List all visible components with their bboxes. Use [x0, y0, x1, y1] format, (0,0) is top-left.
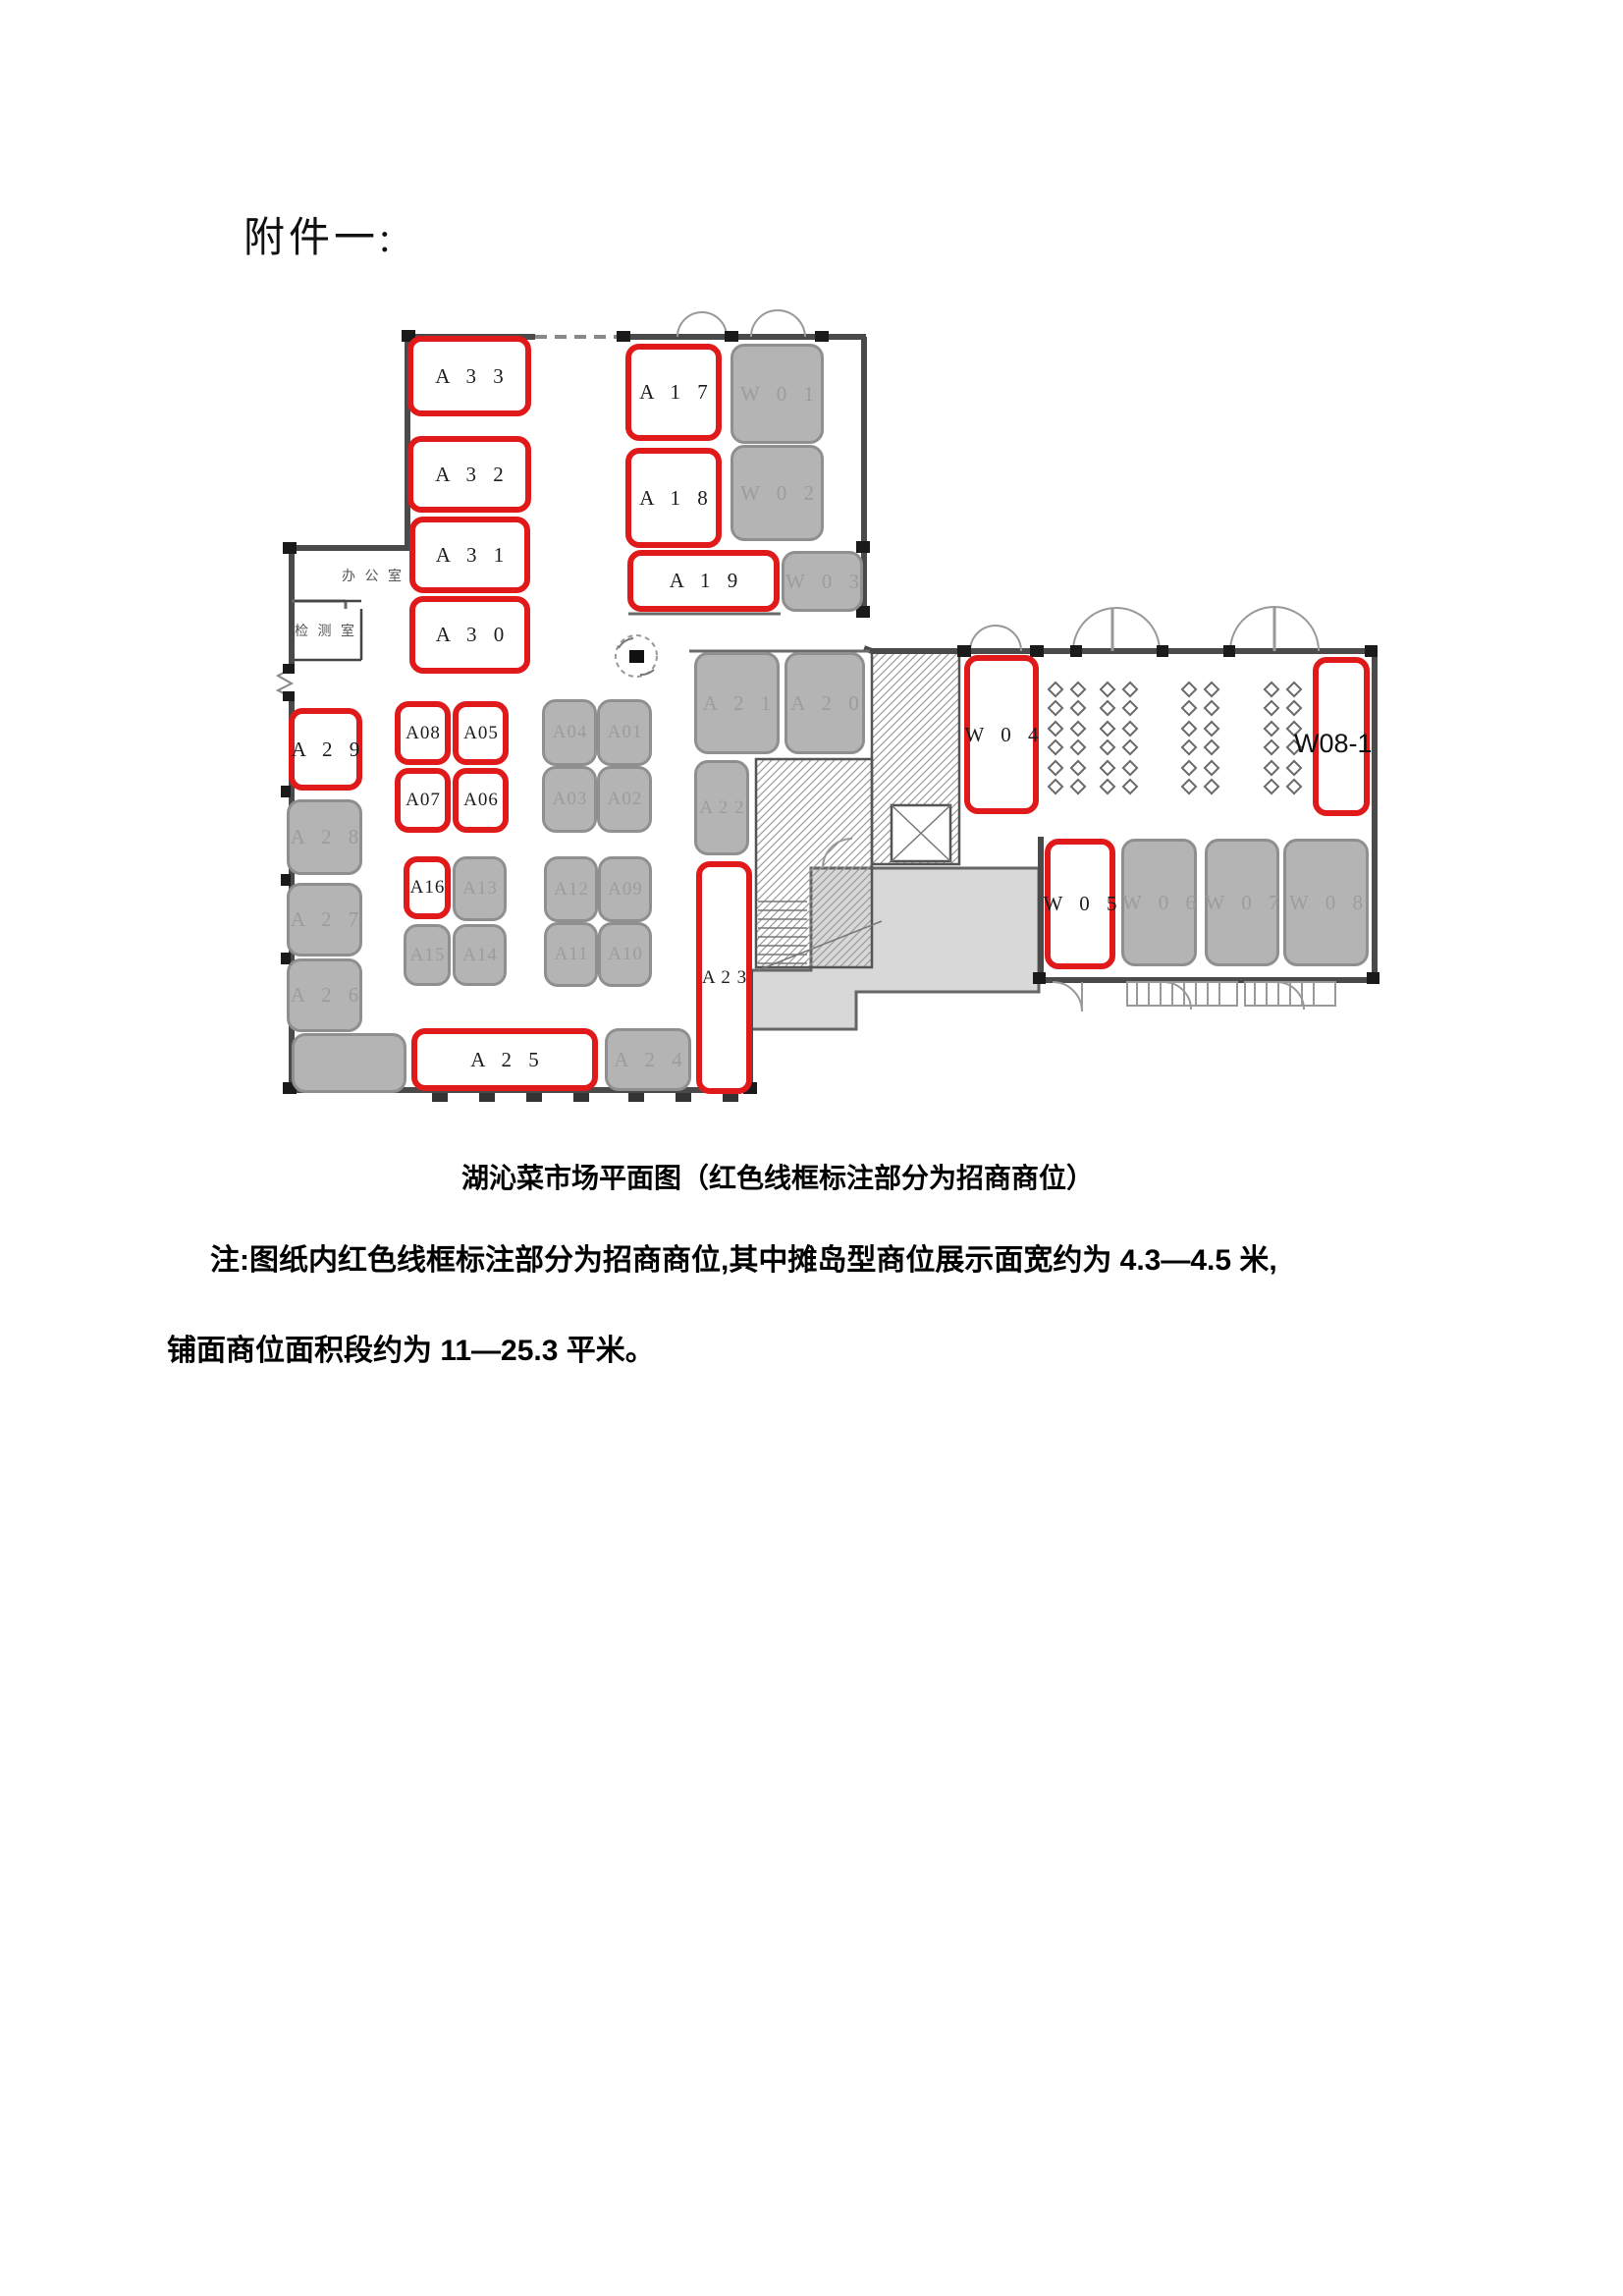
stall-A27: A 2 7: [287, 883, 362, 957]
stall-label: A16: [409, 877, 446, 899]
stall-label: A 2 0: [784, 691, 865, 716]
stall-label: W 0 6: [1116, 891, 1202, 915]
stall-A30: A 3 0: [409, 596, 530, 674]
stall-W08: W 0 8: [1283, 839, 1369, 966]
stall-label: A 1 7: [633, 380, 714, 405]
stall-A28: A 2 8: [287, 799, 362, 875]
stall-A19: A 1 9: [627, 550, 780, 612]
stall-W06: W 0 6: [1121, 839, 1197, 966]
stall-label: W 0 7: [1200, 891, 1285, 915]
dining-table-icon: [1048, 722, 1091, 757]
stall-A25: A 2 5: [411, 1028, 598, 1091]
dining-table-icon: [1264, 761, 1307, 796]
stall-label: A07: [405, 790, 441, 811]
room-label-testing-room: 检 测 室: [295, 621, 357, 640]
stall-A07: A07: [395, 768, 451, 833]
stall-label: A06: [462, 790, 499, 811]
stall-label: A 3 2: [429, 463, 510, 487]
dining-table-icon: [1181, 761, 1224, 796]
stall-label: A 2 7: [285, 907, 365, 932]
room-label-office: 办 公 室: [342, 566, 405, 585]
stall-label: A02: [607, 789, 643, 810]
stall-A12: A12: [544, 856, 598, 922]
stall-label: A 3 3: [429, 364, 510, 389]
stall-A03: A03: [542, 766, 597, 833]
stall-label: A10: [607, 944, 643, 965]
stall-label: A 2 8: [285, 825, 365, 849]
dining-table-icon: [1264, 683, 1307, 718]
stall-label: A 3 0: [430, 623, 511, 647]
stall-A33: A 3 3: [407, 336, 531, 416]
stall-label: W 0 4: [959, 723, 1045, 747]
stall-A18: A 1 8: [625, 448, 722, 548]
stall-A17: A 1 7: [625, 344, 722, 441]
stall-A23: A 2 3: [696, 861, 752, 1094]
stall-A14: A14: [453, 924, 507, 986]
dining-table-icon: [1048, 761, 1091, 796]
stall-label: W 0 2: [734, 481, 820, 506]
stall-A24: A 2 4: [605, 1028, 691, 1091]
stall-label: A08: [405, 723, 441, 744]
stall-label: W 0 8: [1283, 891, 1369, 915]
floor-plan: A 3 3A 3 2A 3 1A 3 0A 1 7A 1 8A 1 9W 0 1…: [0, 0, 1623, 1139]
stall-label: A14: [461, 945, 498, 966]
note-line-1: 注:图纸内红色线框标注部分为招商商位,其中摊岛型商位展示面宽约为 4.3—4.5…: [210, 1235, 1277, 1279]
stall-label: A 2 2: [698, 797, 744, 819]
stall-A15: A15: [404, 924, 451, 986]
stall-W05: W 0 5: [1045, 839, 1115, 969]
stall-A16: A16: [404, 856, 451, 919]
stall-A02: A02: [597, 766, 652, 833]
stall-A05: A05: [453, 701, 509, 765]
dining-table-icon: [1181, 683, 1224, 718]
dining-table-icon: [1100, 683, 1143, 718]
stall-W07: W 0 7: [1205, 839, 1279, 966]
note-line-2: 铺面商位面积段约为 11—25.3 平米。: [167, 1326, 655, 1369]
figure-caption: 湖沁菜市场平面图（红色线框标注部分为招商商位）: [461, 1157, 1094, 1196]
stall-label: A09: [607, 879, 643, 901]
stall-label: A 1 8: [633, 486, 714, 511]
stall-layer: A 3 3A 3 2A 3 1A 3 0A 1 7A 1 8A 1 9W 0 1…: [0, 0, 1623, 1139]
stall-label: A 1 9: [664, 569, 744, 593]
stall-label: A 2 1: [697, 691, 778, 716]
stall-A09: A09: [598, 856, 652, 922]
stall-label: W 0 3: [780, 570, 865, 594]
stall-W04: W 0 4: [964, 655, 1039, 814]
stall-W02: W 0 2: [730, 445, 824, 541]
stall-label: W 0 1: [734, 382, 820, 407]
stall-label: A11: [553, 944, 588, 965]
stall-label: A 3 1: [430, 543, 511, 568]
stall-label: A01: [607, 722, 643, 743]
stall-label: A 2 3: [701, 967, 747, 989]
document-page: 附件一:: [0, 0, 1623, 2296]
stall-A11: A11: [544, 922, 598, 987]
stall-A32: A 3 2: [407, 436, 531, 513]
stall-S01: [292, 1033, 406, 1093]
stall-label: A 2 9: [286, 738, 366, 762]
stall-A01: A01: [597, 699, 652, 766]
stall-label: W 0 5: [1038, 892, 1123, 916]
stall-annotation-w08-1: W08-1: [1294, 729, 1373, 759]
stall-label: A15: [409, 945, 446, 966]
stall-A26: A 2 6: [287, 958, 362, 1032]
stall-A29: A 2 9: [289, 708, 362, 791]
stall-A21: A 2 1: [694, 652, 780, 754]
stall-label: A04: [552, 722, 588, 743]
stall-A13: A13: [453, 856, 507, 921]
dining-table-icon: [1100, 722, 1143, 757]
stall-W01: W 0 1: [730, 344, 824, 444]
dining-table-icon: [1048, 683, 1091, 718]
stall-label: A13: [461, 878, 498, 900]
stall-label: A05: [462, 723, 499, 744]
stall-A10: A10: [598, 922, 652, 987]
stall-A22: A 2 2: [694, 760, 749, 855]
stall-label: A12: [553, 879, 589, 901]
stall-A20: A 2 0: [784, 652, 865, 754]
stall-A08: A08: [395, 701, 451, 765]
dining-table-icon: [1181, 722, 1224, 757]
dining-table-icon: [1100, 761, 1143, 796]
stall-A04: A04: [542, 699, 597, 766]
stall-W03: W 0 3: [782, 551, 863, 612]
stall-label: A03: [552, 789, 588, 810]
stall-A06: A06: [453, 768, 509, 833]
stall-label: A 2 6: [285, 983, 365, 1008]
stall-A31: A 3 1: [409, 517, 530, 593]
stall-label: A 2 4: [608, 1048, 688, 1072]
stall-label: A 2 5: [464, 1048, 545, 1072]
